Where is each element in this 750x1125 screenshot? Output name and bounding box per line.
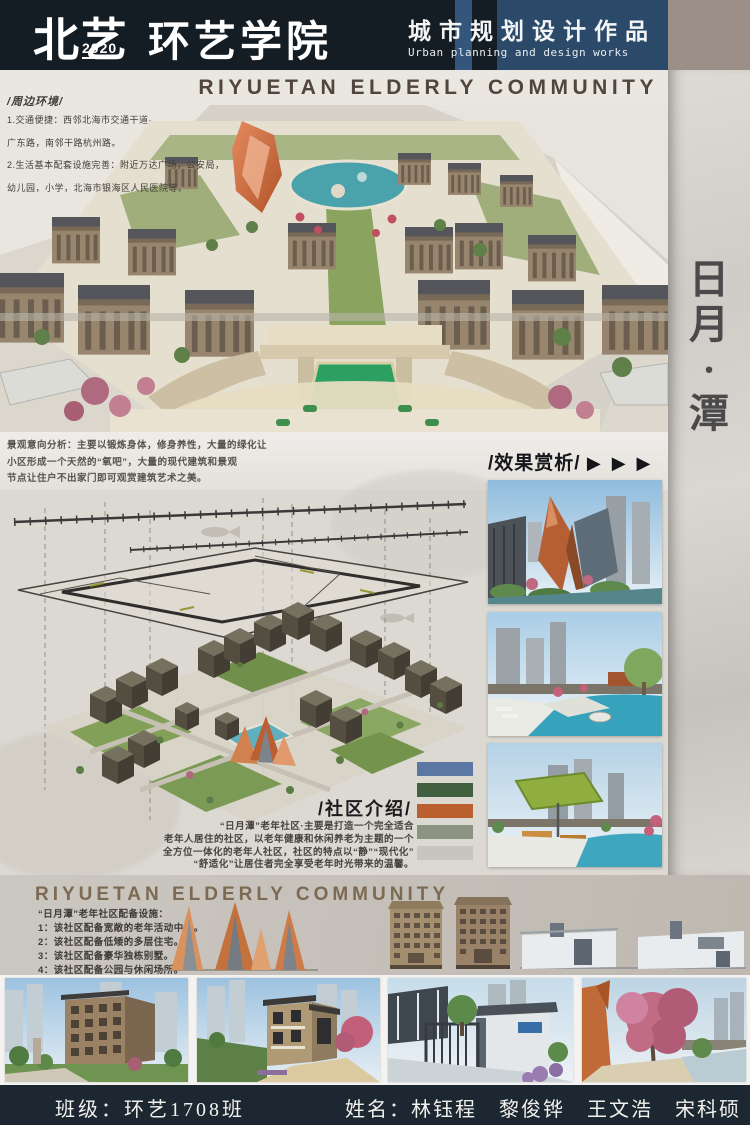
render-photo-illustration <box>582 978 746 1082</box>
photo-villa-view <box>197 978 380 1082</box>
render-photo-illustration <box>5 978 188 1082</box>
effect-render-crystal-plaza <box>488 480 662 604</box>
env-note-title: /周边环境/ <box>7 93 287 109</box>
env-note-line: 2.生活基本配套设施完善：附近万达广场，公安局， <box>7 154 287 177</box>
analysis-line: 节点让住户不出家门即可观赏建筑艺术之美。 <box>7 471 367 488</box>
header-taupe-block <box>668 0 750 70</box>
class-label: 班级：环艺1708班 <box>55 1093 245 1122</box>
footer-bar: 班级：环艺1708班 姓名：林钰程 黎俊铧 王文浩 宋科硕 <box>0 1085 750 1125</box>
effects-section-title: /效果赏析/ ▶ ▶ ▶ <box>488 448 653 475</box>
community-line: “舒适化”让居住者完全享受老年时光带来的温馨。 <box>128 859 414 872</box>
design-poster: 北艺 2020 环艺学院 城市规划设计作品 Urban planning and… <box>0 0 750 1125</box>
palette-swatch-green <box>417 783 473 797</box>
student-names-label: 姓名：林钰程 黎俊铧 王文浩 宋科硕 <box>345 1093 741 1122</box>
palette-swatch-orange <box>417 804 473 818</box>
effect-render-umbrella-lounge <box>488 743 662 867</box>
render-photo-illustration <box>197 978 380 1082</box>
palette-swatch-lightgray <box>417 846 473 860</box>
env-note-line: 1.交通便捷：西邻北海市交通干道· <box>7 109 287 132</box>
bottom-photo-strip <box>0 975 750 1085</box>
analysis-line: 景观意向分析：主要以锻炼身体，修身养性，大量的绿化让 <box>7 438 367 455</box>
facilities-section: RIYUETAN ELDERLY COMMUNITY “日月潭”老年社区配备设施… <box>0 875 750 975</box>
school-logo-text: 北艺 <box>33 4 129 70</box>
vertical-char: · <box>702 350 715 391</box>
community-line: 老年人居住的社区，以老年健康和休闲养老为主题的一个 <box>128 834 414 847</box>
landscape-analysis-text: 景观意向分析：主要以锻炼身体，修身养性，大量的绿化让 小区形成一个天然的“氧吧”… <box>7 438 367 488</box>
surrounding-environment-note: /周边环境/ 1.交通便捷：西邻北海市交通干道· 广东路，南邻干路杭州路。 2.… <box>7 93 287 199</box>
community-intro-title: /社区介绍/ <box>318 795 412 821</box>
photo-blossom-pond <box>582 978 746 1082</box>
poster-title-cn: 城市规划设计作品 <box>408 12 656 46</box>
palette-swatch-blue <box>417 762 473 776</box>
env-note-line: 广东路，南邻干路杭州路。 <box>7 132 287 155</box>
logo-year: 2020 <box>82 40 117 59</box>
photo-entrance-gate <box>388 978 573 1082</box>
poster-title-en: Urban planning and design works <box>408 46 629 59</box>
community-intro-text: “日月潭”老年社区·主要是打造一个完全适合 老年人居住的社区，以老年健康和休闲养… <box>128 821 414 872</box>
env-note-line: 幼儿园，小学，北海市银海区人民医院等。 <box>7 177 287 200</box>
render-photo-illustration <box>488 612 662 736</box>
residential-building-elevations <box>388 895 513 972</box>
crystal-building-elevations <box>163 900 318 972</box>
render-photo-illustration <box>488 743 662 867</box>
project-name-vertical: 日 月 · 潭 <box>668 260 750 435</box>
college-logo-text: 环艺学院 <box>148 8 332 69</box>
community-line: “日月潭”老年社区·主要是打造一个完全适合 <box>128 821 414 834</box>
render-photo-illustration <box>488 480 662 604</box>
palette-swatch-graygreen <box>417 825 473 839</box>
photo-apartment-view <box>5 978 188 1082</box>
side-title-strip: 日 月 · 潭 <box>668 70 750 875</box>
header-bar: 北艺 2020 环艺学院 城市规划设计作品 Urban planning and… <box>0 0 750 70</box>
community-line: 全方位一体化的老年人社区，社区的特点以“静”“现代化” <box>128 847 414 860</box>
effects-title-text: /效果赏析/ <box>488 453 581 474</box>
analysis-line: 小区形成一个天然的“氧吧”，大量的现代建筑和景观 <box>7 455 367 472</box>
triple-arrow-icon: ▶ ▶ ▶ <box>587 453 654 473</box>
render-photo-illustration <box>388 978 573 1082</box>
vertical-char: 日 <box>689 260 729 301</box>
vertical-char: 月 <box>689 305 729 346</box>
vertical-char: 潭 <box>689 394 729 435</box>
material-color-palette <box>417 762 473 867</box>
effect-render-lake-pool <box>488 612 662 736</box>
gate-elevations <box>520 915 746 972</box>
